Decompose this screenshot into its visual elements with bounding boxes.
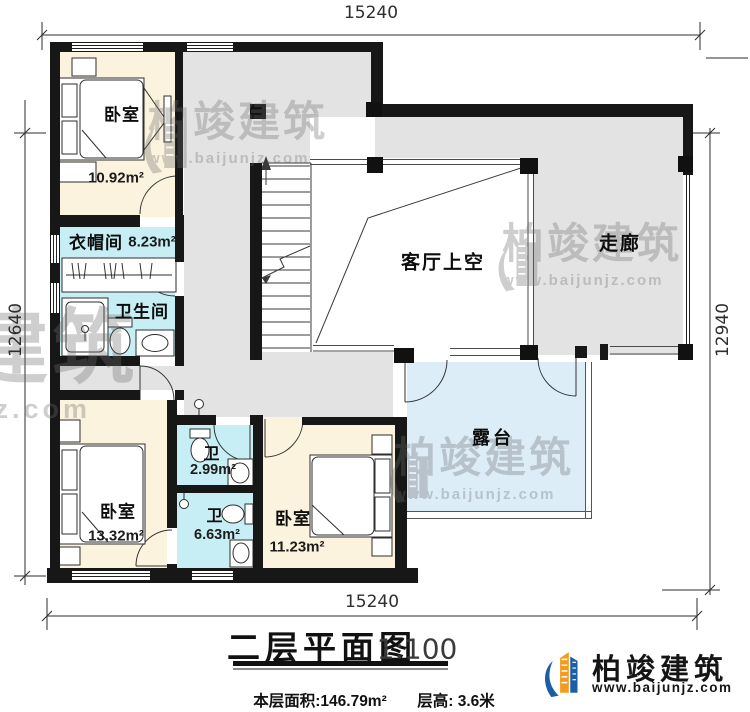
pillow [62, 121, 77, 154]
area-wc-lower: 6.63m² [194, 527, 240, 543]
label-bedroom-bottom-right: 卧室 [275, 505, 311, 530]
wall-segment [177, 485, 253, 493]
wall-segment [60, 215, 140, 227]
company-logo-site: www.baijunjz.com [592, 680, 733, 695]
wall-segment [175, 390, 184, 400]
label-bathroom: 卫生间 [115, 298, 169, 323]
wall-segment [167, 564, 177, 570]
window [187, 43, 233, 51]
label-corridor: 走廊 [599, 229, 641, 256]
area-bedroom-bottom-right: 11.23m² [269, 539, 324, 556]
dim-left: 12640 [6, 303, 26, 357]
label-terrace: 露台 [472, 424, 514, 450]
column [250, 104, 266, 119]
column [367, 157, 383, 173]
wall-segment [167, 400, 177, 528]
label-wc-lower: 卫 [206, 502, 223, 526]
sight-lines [144, 88, 164, 150]
column [520, 158, 538, 174]
pillow [375, 459, 390, 493]
company-logo-icon [538, 642, 588, 700]
pillow [62, 450, 77, 490]
floor-plan-canvas: 柏竣建筑 www.baijunjz.com 柏竣建筑 www.baijunjz.… [0, 0, 750, 712]
wall-segment [250, 163, 262, 360]
wall-segment [575, 346, 587, 358]
area-cloakroom: 8.23m² [128, 234, 176, 251]
void-railings [310, 160, 678, 356]
wall-segment [175, 296, 184, 366]
wall-segment [600, 344, 608, 360]
mattress [312, 457, 374, 535]
title-underline [233, 661, 448, 666]
sink-basin [142, 335, 168, 352]
column [678, 156, 693, 172]
drain [82, 326, 89, 333]
pillow [62, 494, 77, 534]
dim-bottom: 15240 [345, 592, 399, 612]
column [678, 344, 693, 360]
column [366, 102, 382, 117]
toilet-bowl [222, 505, 244, 523]
stairs [261, 156, 311, 352]
area-bedroom-top-left: 10.92m² [88, 170, 144, 187]
label-bedroom-bottom-left: 卧室 [100, 498, 136, 523]
pillow [375, 497, 390, 531]
toilet-tank [190, 429, 210, 438]
wall-segment [50, 390, 140, 400]
wall-segment [253, 415, 263, 568]
sink-basin [233, 543, 249, 563]
wall-segment [302, 417, 405, 425]
wall-segment [370, 104, 693, 117]
label-wc-upper: 卫 [203, 440, 220, 464]
title-underline-thin [233, 668, 448, 670]
tv-cabinet [164, 96, 171, 142]
wall-segment [175, 52, 183, 217]
nightstand [58, 420, 80, 442]
toilet-tank [245, 504, 253, 524]
window [684, 175, 692, 344]
window [51, 283, 59, 313]
lamp [180, 500, 189, 509]
floor-area-text: 本层面积:146.79m² [253, 689, 387, 711]
wall-segment [177, 415, 216, 425]
dim-right: 12940 [713, 303, 733, 357]
window [192, 571, 233, 580]
wall-segment [395, 417, 407, 568]
nightstand [72, 58, 96, 76]
window [72, 43, 143, 51]
wall-segment [60, 356, 140, 366]
floor-height-text: 层高: 3.6米 [417, 689, 495, 711]
window [51, 235, 59, 263]
wall-segment [175, 215, 184, 262]
area-bedroom-bottom-left: 13.32m² [88, 528, 144, 545]
area-wc-upper: 2.99m² [190, 462, 236, 478]
lamp [195, 400, 204, 409]
nightstand [372, 538, 392, 556]
dim-top: 15240 [344, 3, 398, 23]
toilet-bowl [110, 328, 130, 354]
nightstand [372, 435, 392, 454]
window [72, 571, 150, 580]
label-bedroom-top-left: 卧室 [104, 101, 140, 126]
label-cloakroom: 衣帽间 [69, 229, 123, 254]
pillow [62, 84, 77, 117]
label-living-void: 客厅上空 [401, 248, 485, 275]
column [520, 345, 538, 360]
column [394, 348, 414, 363]
dresser [58, 547, 80, 565]
